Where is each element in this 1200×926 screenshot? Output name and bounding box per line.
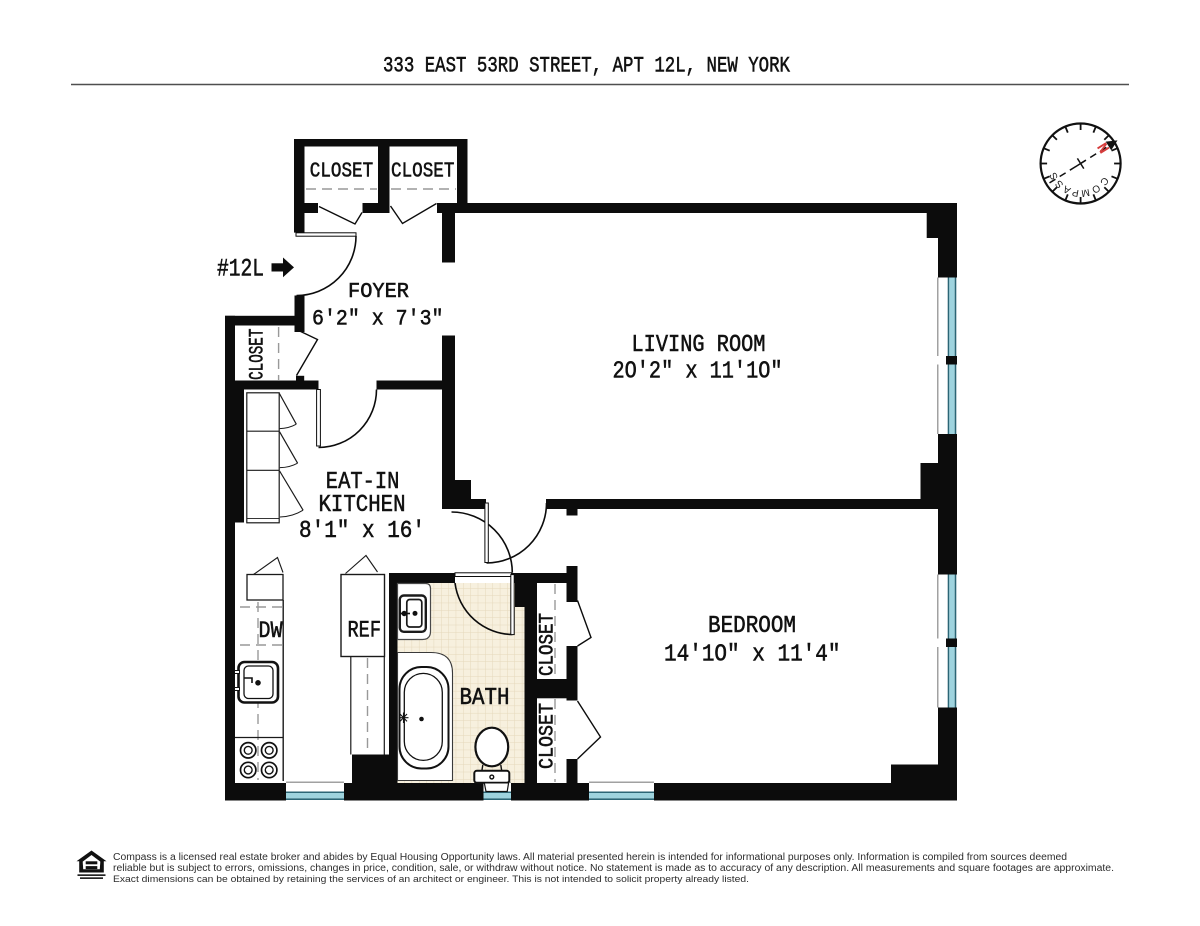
svg-text:FOYER: FOYER — [348, 281, 409, 304]
svg-text:REF: REF — [348, 618, 382, 644]
svg-text:Compass is a licensed real est: Compass is a licensed real estate broker… — [113, 852, 1067, 863]
svg-text:DW: DW — [259, 618, 283, 644]
svg-text:2O'2" x 11'1O": 2O'2" x 11'1O" — [613, 359, 783, 386]
svg-text:CLOSET: CLOSET — [310, 161, 373, 184]
svg-text:333 EAST 53RD STREET, APT 12L,: 333 EAST 53RD STREET, APT 12L, NEW YORK — [383, 53, 790, 79]
svg-text:LIVING ROOM: LIVING ROOM — [632, 332, 766, 359]
svg-text:CLOSET: CLOSET — [247, 329, 270, 380]
svg-text:BEDROOM: BEDROOM — [708, 613, 796, 640]
svg-text:Exact dimensions can be obtain: Exact dimensions can be obtained by reta… — [113, 873, 749, 884]
svg-text:#12L: #12L — [217, 255, 264, 284]
svg-text:CLOSET: CLOSET — [391, 161, 454, 184]
svg-text:8'1" x 16': 8'1" x 16' — [299, 518, 425, 545]
svg-text:BATH: BATH — [460, 685, 510, 712]
svg-text:14'1O" x 11'4": 14'1O" x 11'4" — [664, 642, 841, 669]
svg-text:KITCHEN: KITCHEN — [319, 492, 406, 519]
svg-text:CLOSET: CLOSET — [537, 613, 560, 676]
svg-text:CLOSET: CLOSET — [537, 703, 560, 769]
svg-text:6'2" x 7'3": 6'2" x 7'3" — [312, 306, 444, 332]
